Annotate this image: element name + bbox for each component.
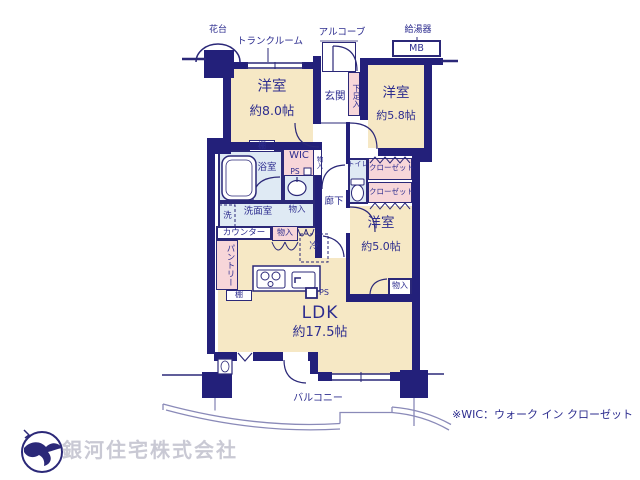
label-ldk-name: LDK: [297, 305, 343, 323]
wall: [424, 65, 432, 150]
label-balcony: バルコニー: [291, 394, 345, 405]
balcony-edge: [340, 413, 392, 424]
label-fridge: 冷: [307, 242, 321, 252]
label-monoire-washroom: 物入: [286, 206, 308, 215]
label-trunk-room: トランクルーム: [236, 37, 304, 47]
wall: [346, 294, 412, 302]
label-western5-name: 洋室: [362, 216, 400, 230]
label-water-heater: 給湯器: [398, 26, 438, 35]
alcove-box: [322, 42, 356, 72]
bird-icon: [24, 442, 62, 466]
label-washer: 洗: [221, 212, 234, 221]
wic-note: ※WIC：ウォーク イン クローゼット: [452, 409, 637, 421]
label-flower-stand: 花台: [202, 26, 234, 35]
label-shelf-pantry: 棚: [230, 291, 248, 299]
label-western5-size: 約5.0帖: [358, 241, 404, 253]
label-closet-2: クローゼット: [369, 188, 411, 196]
wall: [310, 352, 318, 374]
wall: [360, 58, 368, 120]
room-western-58: [368, 65, 424, 148]
wall: [230, 62, 248, 69]
logo-spark-icon: [24, 430, 29, 438]
wall: [346, 190, 350, 208]
label-alcove: アルコーブ: [318, 28, 366, 38]
label-western58-name: 洋室: [374, 86, 418, 100]
wall: [253, 352, 283, 361]
balcony-edge: [392, 413, 449, 431]
balcony-edge: [163, 404, 340, 424]
wall: [207, 152, 215, 354]
label-bathroom: 浴室: [254, 163, 280, 173]
label-genkan: 玄関: [323, 91, 347, 102]
label-corridor: 廊下: [323, 197, 345, 207]
wall: [346, 233, 350, 302]
pillar-bottom-left: [202, 372, 232, 398]
label-closet-1: クローゼット: [369, 164, 411, 172]
label-monoire-strip: 物入: [314, 150, 322, 175]
label-counter: カウンター: [222, 229, 266, 238]
wall: [223, 78, 231, 142]
slop-sink-basin: [221, 361, 229, 372]
wall: [368, 58, 443, 65]
logo-circle: [22, 432, 62, 472]
company-logo-icon: [22, 430, 62, 472]
pillar-bottom-right: [400, 370, 428, 398]
wall: [390, 372, 402, 381]
label-monoire-counter: 物入: [275, 229, 295, 237]
wall: [214, 352, 237, 361]
company-name: 銀河住宅株式会社: [62, 440, 242, 461]
balcony-edge: [166, 410, 340, 430]
label-western58-size: 約5.8帖: [368, 110, 424, 122]
floor-plan: 花台 トランクルーム アルコーブ 給湯器 MB 洋室 約8.0帖 玄関 下足入 …: [0, 0, 640, 480]
wall: [313, 56, 321, 124]
door-arc-balcony: [284, 360, 306, 383]
label-western8-name: 洋室: [250, 80, 294, 95]
label-wic: WIC: [283, 151, 315, 162]
label-pantry: パントリー: [220, 243, 234, 287]
room-bathroom: [218, 150, 283, 202]
label-washroom: 洗面室: [237, 207, 279, 217]
balcony-door-marker: [238, 353, 252, 361]
wall: [346, 122, 350, 164]
label-shelf-bath: 棚: [250, 142, 274, 150]
label-toilet: トイレ: [347, 161, 369, 168]
label-mb: MB: [392, 44, 441, 54]
balcony-edge: [392, 407, 451, 425]
label-ldk-size: 約17.5帖: [284, 326, 356, 340]
room-corridor: [322, 122, 346, 258]
wall: [318, 372, 332, 381]
washbasin-nook: [283, 174, 315, 202]
label-ps-wic: PS: [287, 168, 303, 176]
wall: [378, 148, 424, 156]
room-ldk-bay: [318, 352, 402, 374]
label-shoe-box: 下足入: [349, 76, 360, 116]
label-western8-size: 約8.0帖: [246, 104, 298, 117]
label-ps-kitchen: PS: [319, 289, 335, 297]
label-monoire-western5: 物入: [390, 282, 410, 290]
